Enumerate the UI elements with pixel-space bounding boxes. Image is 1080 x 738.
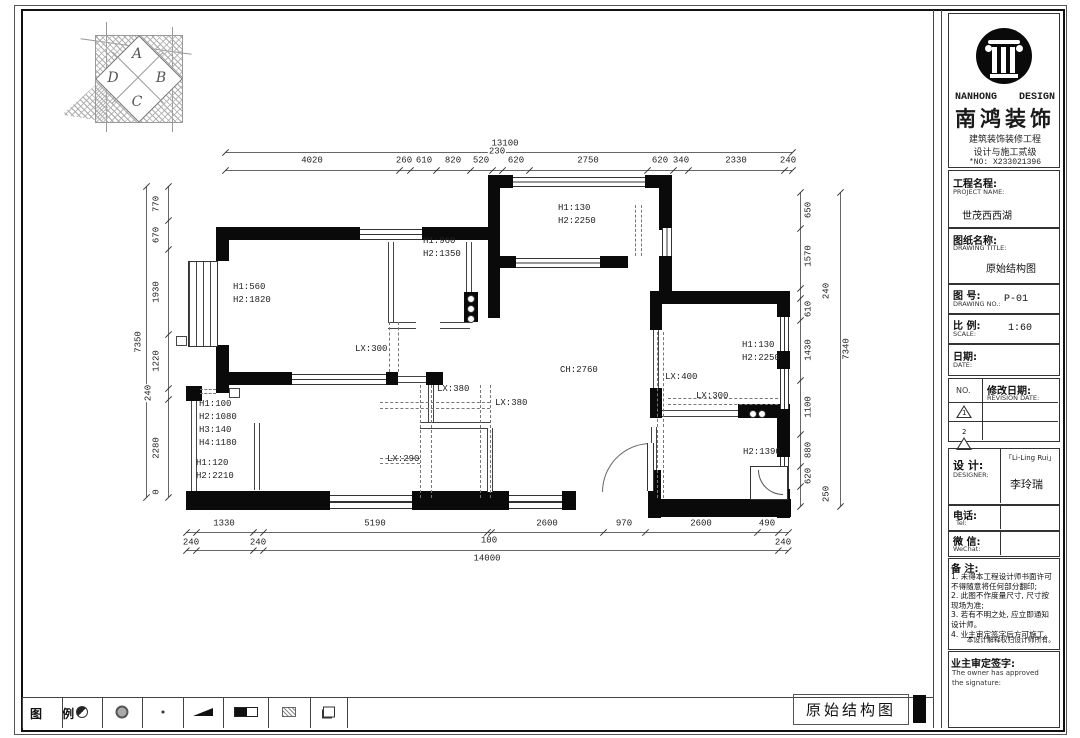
wall [488,175,513,188]
partition-wall [398,376,426,383]
wall [600,256,628,268]
logo-column-cap [988,40,1020,44]
room-height-label: H1:120 [196,459,228,468]
dimension-label: 970 [615,520,633,529]
drawing-title-label-en: DRAWING TITLE: [953,244,1006,252]
dimension-line [146,186,147,497]
window [509,495,562,509]
scale-value: 1:60 [1008,323,1032,334]
outlet-circle-icon [467,315,475,323]
logo-column-shaft [992,47,1016,73]
bay-window [188,261,218,347]
dimension-label: 240 [145,384,154,402]
beam-line [668,404,778,405]
brand-name-cn: 南鸿装饰 [950,103,1060,133]
room-height-label: H1:560 [233,283,265,292]
drawing-name-box: 原始结构图 [793,694,909,725]
circle-half-icon [76,706,88,718]
box-hatch-icon [282,707,296,717]
legend-cell-divider [102,697,103,728]
room-height-label: H1:100 [199,400,231,409]
revision-divider [982,378,983,440]
room-height-label: LX:400 [665,373,697,382]
wall [186,491,330,510]
wall [216,372,292,385]
wall [650,291,790,304]
dimension-label: 0 [153,488,162,495]
dimension-line [186,550,788,551]
tel-label-en: Tel: [956,519,967,527]
drawing-no-label-en: DRAWING NO.: [953,300,1001,308]
brand-name-en: NANHONG DESIGN [955,92,1055,103]
scale-label-en: SCALE: [953,330,976,338]
partition-wall [653,330,659,388]
dimension-tick [165,494,172,501]
wall [648,499,791,517]
room-height-label: H2:1390 [743,448,781,457]
titleblock-separator [941,10,942,728]
brand-subtitle-1: 建筑装饰装修工程 [950,132,1060,145]
switch-box-icon [229,388,240,398]
room-height-label: LX:380 [495,399,527,408]
window [780,369,789,409]
circle-ring-icon [116,706,129,719]
room-height-label: H1:130 [558,204,590,213]
designer-label-en: DESIGNER: [953,471,989,479]
compass-letter: A [132,46,142,62]
approval-line1: The owner has approved [952,669,1039,677]
designer-name-en: 「Li-Ling Rui」 [1005,453,1055,463]
beam-line [398,322,399,372]
dimension-tick [837,503,844,510]
legend-cell-divider [223,697,224,728]
outlet-circle-icon [467,305,475,313]
dimension-label: 5190 [363,520,387,529]
window [780,317,789,351]
drawing-name-label: 原始结构图 [806,699,896,720]
dimension-label: 240 [182,539,200,548]
wall [488,268,500,318]
project-label-en: PROJECT NAME: [953,188,1004,196]
revision-no-label: NO. [956,386,971,395]
brand-license-no: *NO: X233021396 [950,158,1060,167]
dimension-label: 2330 [724,157,748,166]
dimension-tick [785,547,792,554]
dimension-label: 880 [805,441,814,459]
notes-lines: 1. 未得本工程设计师书面许可 不得随意将任何部分翻印;2. 此图不作度量尺寸,… [951,572,1052,639]
dimension-label: 2750 [576,157,600,166]
window [513,177,645,187]
dimension-label: 2280 [153,436,162,460]
room-height-label: H1:130 [742,341,774,350]
beam-line [380,402,490,403]
dimension-label: 250 [823,485,832,503]
note-line: 现场为准; [951,601,1052,611]
dimension-label: 240 [249,539,267,548]
room-height-label: CH:2760 [560,366,598,375]
dimension-label: 2600 [689,520,713,529]
footer-black-bar [913,695,926,723]
square-shadow-icon [323,707,335,718]
beam-line [663,430,664,498]
logo-volute [1016,45,1023,52]
dimension-label: 14000 [472,555,501,564]
note-line: 2. 此图不作度量尺寸, 尺寸按 [951,591,1052,601]
window [360,229,422,240]
brand-en-left: NANHONG [955,92,997,103]
room-height-label: H1:960 [423,237,455,246]
legend-cell-divider [22,697,23,728]
dot-icon [161,711,164,714]
wall [645,175,672,188]
legend-cell-divider [268,697,269,728]
room-height-label: H2:2210 [196,472,234,481]
dimension-tick [785,529,792,536]
notes-rights: 本设计解释权归设计师所有。 [948,634,1055,644]
legend-cell-divider [62,697,63,728]
dimension-label: 260 [395,157,413,166]
compass-letter: D [107,70,118,86]
floor-plan: 1310040202606108205202306202750620340233… [0,0,1080,738]
partition-wall [388,322,416,329]
compass-letter: C [132,94,143,110]
entry-door-swing [602,443,651,492]
revision-row-line [948,402,1058,403]
window [516,258,600,268]
dimension-label: 230 [488,148,506,157]
dimension-label: 610 [805,300,814,318]
room-height-label: LX:300 [355,345,387,354]
legend-cell-divider [142,697,143,728]
dimension-label: 610 [415,157,433,166]
room-height-label: LX:300 [696,392,728,401]
titleblock-separator [933,10,934,728]
outlet-circle-icon [758,410,766,418]
dimension-label: 1100 [805,395,814,419]
room-height-label: H2:2250 [558,217,596,226]
dimension-label: 650 [805,201,814,219]
partition-wall [388,242,394,322]
dimension-label: 1930 [153,280,162,304]
wall [488,256,516,268]
rect-half-icon [234,707,258,717]
drawing-no-value: P-01 [1004,294,1028,305]
legend-cell-divider [310,697,311,728]
revision-number: 2 [962,428,966,436]
beam-line [200,393,216,394]
dimension-label: 340 [672,157,690,166]
dimension-label: 100 [480,537,498,546]
approval-line2: the signature: [952,679,1001,687]
room-height-label: H3:140 [199,426,231,435]
dimension-label: 2600 [535,520,559,529]
wall [216,227,360,240]
partition-wall [254,423,260,490]
dimension-label: 1220 [153,349,162,373]
beam-line [657,332,658,427]
wall [488,188,500,256]
beam-line [200,389,216,390]
dimension-label: 1330 [212,520,236,529]
note-line: 设计师。 [951,620,1052,630]
dimension-tick [797,503,804,510]
dimension-label: 820 [444,157,462,166]
logo-volute [985,45,992,52]
revision-row-line [948,421,1058,422]
drawing-sheet: 1310040202606108205202306202750620340233… [0,0,1080,738]
wall [562,491,576,510]
brand-en-right: DESIGN [1019,92,1055,103]
dimension-label: 490 [758,520,776,529]
brand-subtitle-2: 设计与施工贰级 [950,145,1060,158]
wall [777,291,790,317]
wall [216,227,229,261]
revision-label-en: REVISION DATE: [987,394,1039,402]
wall [650,304,662,330]
dimension-label: 1430 [805,338,814,362]
dimension-label: 7340 [843,337,852,361]
window [292,374,386,385]
logo-column-base [990,74,1018,78]
dimension-label: 620 [651,157,669,166]
drawing-title-value: 原始结构图 [986,260,1036,275]
wall [412,491,509,510]
beam-line [380,408,490,409]
window [662,228,672,256]
entry-door-leaf [647,443,654,491]
partition-wall [466,242,472,292]
dimension-tick [789,167,796,174]
note-line: 不得随意将任何部分翻印; [951,582,1052,592]
wechat-label-en: WeChat: [953,545,980,553]
dimension-label: 620 [507,157,525,166]
partition-wall [440,322,470,329]
room-height-label: H2:1820 [233,296,271,305]
designer-divider [1000,448,1001,503]
beam-line [663,332,664,427]
room-height-label: H2:1350 [423,250,461,259]
wall [659,188,672,230]
legend-cell-divider [183,697,184,728]
dimension-label: 4020 [300,157,324,166]
beam-line [657,430,658,498]
room-height-label: H2:1080 [199,413,237,422]
legend-title: 图 例 [30,705,82,722]
dimension-label: 770 [153,195,162,213]
dimension-label: 240 [774,539,792,548]
approval-label-cn: 业主审定签字: [951,655,1015,670]
tel-divider [1000,505,1001,529]
room-height-label: LX:380 [437,385,469,394]
note-line: 1. 未得本工程设计师书面许可 [951,572,1052,582]
dimension-line [168,186,169,497]
beam-line [389,322,390,372]
designer-name-cn: 李玲瑞 [1010,476,1043,492]
room-height-label: H2:2250 [742,354,780,363]
project-name-value: 世茂西西湖 [962,207,1012,222]
compass-letter: B [156,70,166,86]
date-label-en: DATE: [953,361,972,369]
dimension-line [800,192,801,506]
dimension-line [225,152,792,153]
wall [216,345,229,393]
outlet-circle-icon [467,295,475,303]
beam-line [641,205,642,256]
dimension-tick [143,494,150,501]
partition-wall [662,410,738,417]
wechat-divider [1000,531,1001,555]
legend-cell-divider [347,697,348,728]
beam-line [490,385,491,498]
dimension-label: 240 [823,282,832,300]
dimension-label: 7350 [135,330,144,354]
window [330,495,412,509]
dimension-label: 620 [805,467,814,485]
room-height-label: H4:1180 [199,439,237,448]
dimension-label: 240 [779,157,797,166]
room-height-label: LX:290 [387,455,419,464]
dimension-line [225,170,792,171]
dimension-label: 520 [472,157,490,166]
dimension-label: 670 [153,226,162,244]
beam-line [635,205,636,256]
wall [650,388,662,418]
switch-box-icon [176,336,187,346]
dimension-label: 1570 [805,244,814,268]
wall [386,372,398,385]
revision-number: 1 [962,409,966,417]
note-line: 3. 若有不明之处, 应立即通知 [951,610,1052,620]
outlet-circle-icon [749,410,757,418]
